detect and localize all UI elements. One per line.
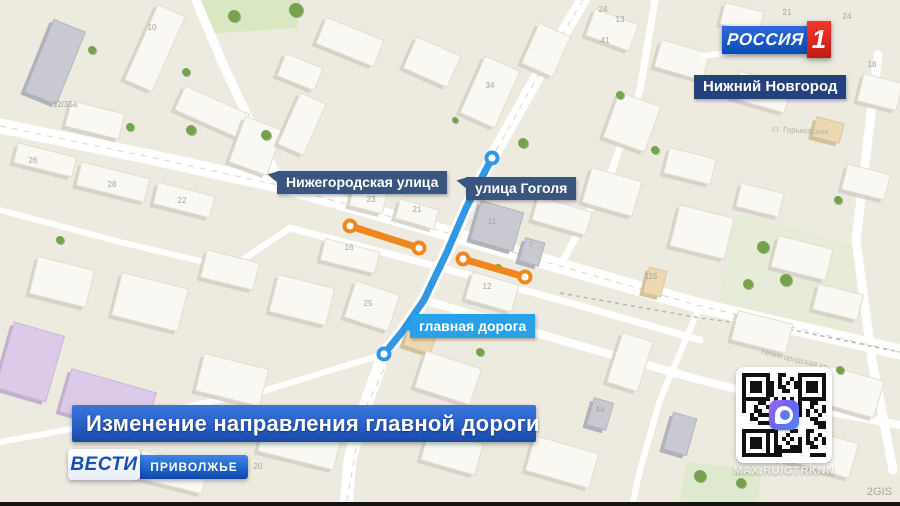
svg-text:115: 115 [645,272,658,281]
svg-text:16: 16 [345,243,354,252]
svg-text:18: 18 [868,60,877,69]
svg-text:28: 28 [108,180,117,189]
qr-caption: MAX.RU/GTRKNN [722,465,846,477]
video-bottom-edge [0,502,900,506]
svg-text:7: 7 [529,240,534,249]
tv-screenshot-frame: 1034244121241826282212/35а23211611712252… [0,0,900,506]
rossiya-logo: РОССИЯ [722,26,808,54]
svg-text:21: 21 [413,205,422,214]
svg-text:34: 34 [486,81,495,90]
svg-text:12/35а: 12/35а [53,100,78,109]
svg-text:41: 41 [601,36,610,45]
svg-text:ст. Горьковская: ст. Горьковская [772,125,829,137]
svg-text:13: 13 [616,15,625,24]
svg-text:24: 24 [599,5,608,14]
svg-text:23: 23 [367,195,376,204]
svg-text:11: 11 [488,217,497,226]
max-messenger-icon [769,400,799,430]
qr-code [736,367,832,463]
main-road-label-text: главная дорога [419,318,526,334]
svg-text:21: 21 [783,8,792,17]
svg-text:4а: 4а [596,405,605,414]
vesti-logo-text: ВЕСТИ [70,454,137,475]
street-label-text: улица Гоголя [475,180,567,196]
map-provider-watermark: 2GIS [867,486,892,498]
svg-text:12: 12 [483,282,492,291]
privolzhye-text: ПРИВОЛЖЬЕ [150,460,238,474]
svg-text:20: 20 [254,462,263,471]
svg-text:26: 26 [29,156,38,165]
chat-bubble-dot [780,410,790,420]
street-label-nizhegorodskaya: Нижегородская улица [277,171,447,194]
headline-banner: Изменение направления главной дороги [72,405,536,442]
channel-number: 1 [812,24,826,54]
vesti-logo: ВЕСТИ [68,449,140,480]
main-road-label: главная дорога [410,314,535,338]
city-label-text: Нижний Новгород [703,78,837,95]
privolzhye-badge: ПРИВОЛЖЬЕ [140,455,248,479]
rossiya-logo-text: РОССИЯ [726,26,805,54]
svg-text:22: 22 [178,196,187,205]
city-label: Нижний Новгород [694,75,846,99]
svg-text:10: 10 [148,23,157,32]
headline-text: Изменение направления главной дороги [72,405,536,442]
channel-one-badge: 1 [807,21,831,58]
svg-text:24: 24 [843,12,852,21]
svg-text:25: 25 [364,299,373,308]
street-label-text: Нижегородская улица [286,174,438,190]
street-label-gogolya: улица Гоголя [466,177,576,200]
